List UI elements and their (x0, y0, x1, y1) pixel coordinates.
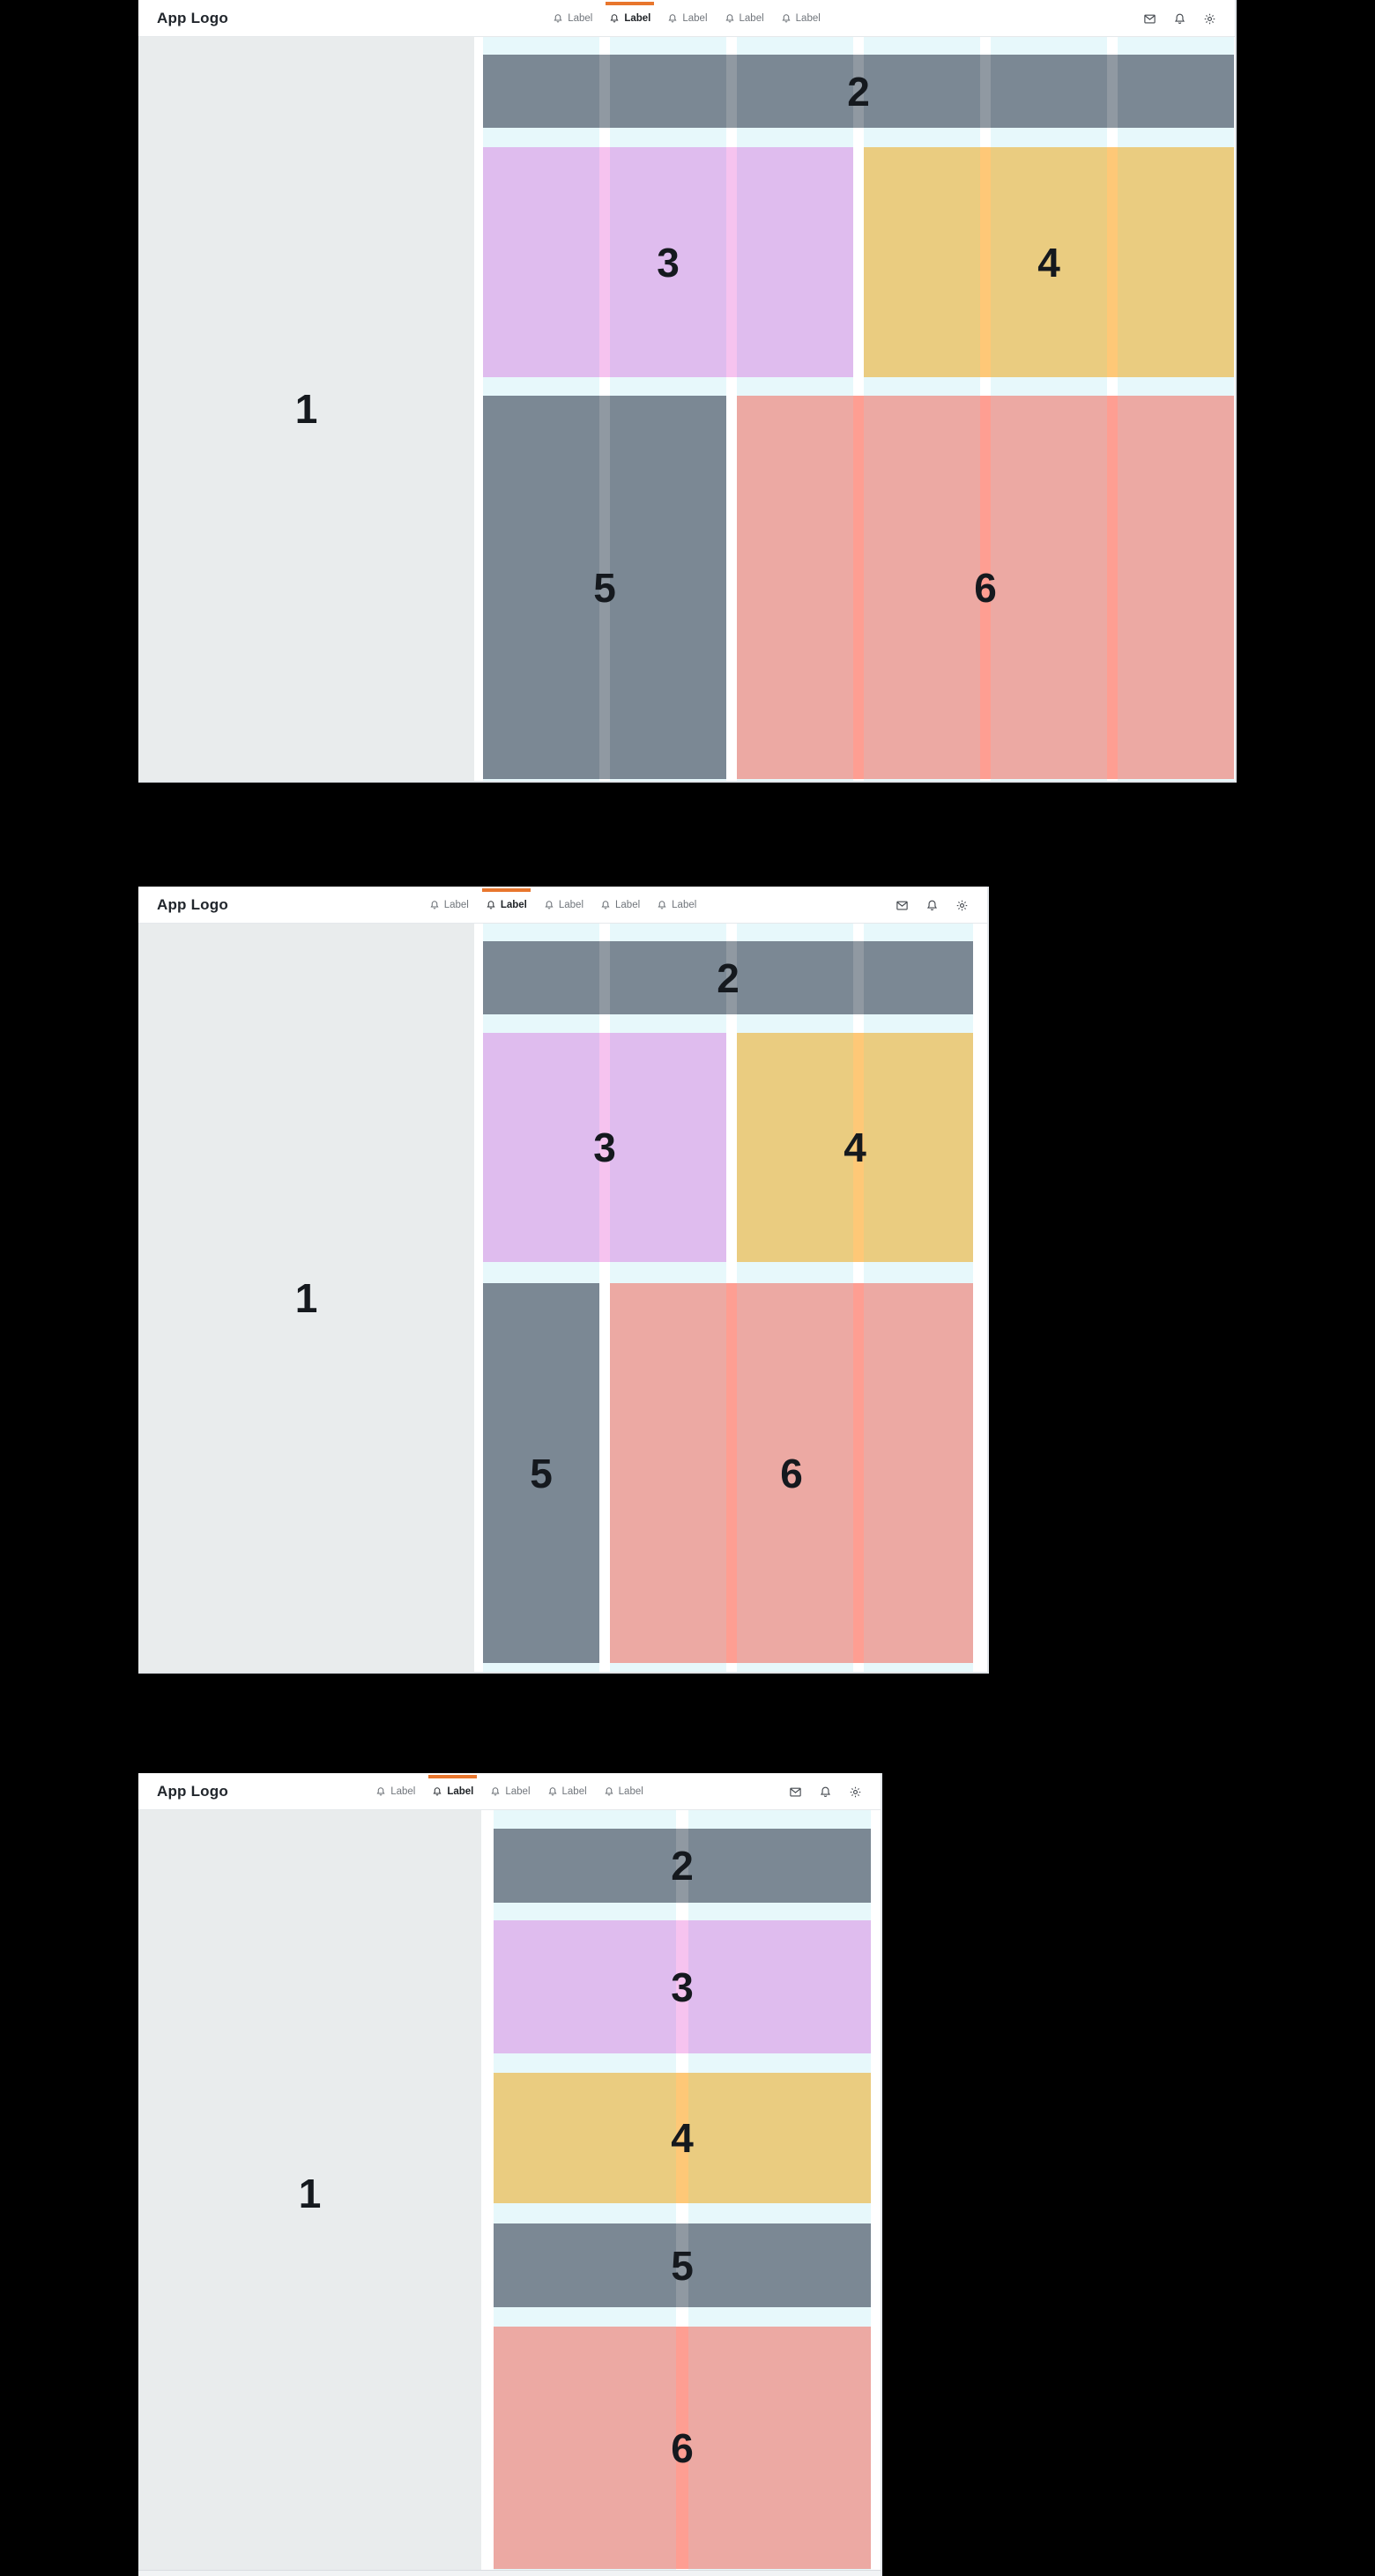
gear-icon[interactable] (1203, 12, 1216, 26)
header-actions (789, 1773, 862, 1810)
mail-icon[interactable] (896, 899, 909, 912)
region-number: 3 (671, 1967, 694, 2008)
main-nav: LabelLabelLabelLabelLabel (138, 0, 1235, 36)
region-5-panel: 5 (494, 2223, 871, 2307)
region-6-panel: 6 (737, 396, 1234, 779)
nav-item-label: Label (568, 13, 592, 24)
bell-icon (600, 900, 611, 910)
region-number: 1 (299, 2173, 322, 2214)
region-number: 2 (717, 958, 740, 998)
mockup-mobile: App Logo LabelLabelLabelLabelLabel (138, 1773, 882, 2576)
region-number: 6 (780, 1453, 803, 1494)
nav-item-label: Label (740, 13, 764, 24)
nav-item-5[interactable]: Label (654, 887, 699, 923)
content-grid: 2 3 4 5 6 (483, 37, 1234, 781)
region-2-top-band: 2 (494, 1829, 871, 1903)
nav-item-label: Label (624, 13, 650, 24)
region-6-panel: 6 (494, 2327, 871, 2569)
bell-icon[interactable] (1173, 12, 1186, 26)
region-number: 5 (530, 1453, 553, 1494)
header-actions (1143, 0, 1216, 37)
bell-icon (667, 13, 678, 24)
region-number: 3 (593, 1127, 616, 1168)
app-header: App Logo LabelLabelLabelLabelLabel (138, 1773, 881, 1810)
nav-item-2-active[interactable]: Label (483, 887, 530, 923)
bell-icon (490, 1786, 501, 1797)
main-nav: LabelLabelLabelLabelLabel (138, 1773, 881, 1809)
bell-icon (547, 1786, 558, 1797)
nav-item-label: Label (390, 1786, 415, 1797)
bell-icon (553, 13, 563, 24)
region-number: 6 (974, 568, 997, 608)
nav-item-label: Label (501, 900, 527, 910)
region-number: 2 (671, 1845, 694, 1886)
region-3-panel: 3 (483, 1033, 726, 1262)
bell-icon (725, 13, 735, 24)
region-4-panel: 4 (494, 2073, 871, 2203)
bell-icon (429, 900, 440, 910)
bell-icon (781, 13, 792, 24)
bell-icon (657, 900, 667, 910)
app-header: App Logo LabelLabelLabelLabelLabel (138, 0, 1235, 37)
sidebar-region-1: 1 (138, 924, 474, 1672)
nav-item-5[interactable]: Label (601, 1773, 646, 1809)
nav-item-label: Label (505, 1786, 530, 1797)
mockup-desktop: App Logo LabelLabelLabelLabelLabel (138, 0, 1237, 783)
nav-item-label: Label (672, 900, 696, 910)
nav-item-1[interactable]: Label (373, 1773, 418, 1809)
gear-icon[interactable] (849, 1785, 862, 1799)
content-grid: 2 3 4 5 6 (483, 924, 973, 1672)
region-number: 1 (295, 1278, 318, 1318)
sidebar-region-1: 1 (138, 37, 474, 781)
region-5-panel: 5 (483, 396, 726, 779)
nav-item-label: Label (444, 900, 469, 910)
region-6-panel: 6 (610, 1283, 973, 1663)
nav-item-5[interactable]: Label (778, 0, 823, 36)
bell-icon (609, 13, 620, 24)
nav-item-2-active[interactable]: Label (606, 0, 653, 36)
region-3-panel: 3 (494, 1920, 871, 2053)
bell-icon (375, 1786, 386, 1797)
app-body: 1 2 3 4 5 6 (138, 924, 987, 1672)
bell-icon[interactable] (819, 1785, 832, 1799)
region-number: 4 (844, 1127, 866, 1168)
nav-item-2-active[interactable]: Label (429, 1773, 476, 1809)
gear-icon[interactable] (955, 899, 969, 912)
nav-item-label: Label (796, 13, 821, 24)
app-body: 1 2 3 4 5 6 (138, 37, 1235, 781)
nav-item-1[interactable]: Label (427, 887, 472, 923)
region-3-panel: 3 (483, 147, 853, 377)
mail-icon[interactable] (1143, 12, 1156, 26)
main-nav: LabelLabelLabelLabelLabel (138, 887, 987, 923)
header-actions (896, 887, 969, 924)
nav-item-label: Label (447, 1786, 473, 1797)
nav-item-label: Label (615, 900, 640, 910)
app-body: 1 2 3 4 5 6 (138, 1810, 881, 2576)
region-number: 2 (847, 71, 870, 112)
nav-item-label: Label (562, 1786, 587, 1797)
region-number: 5 (593, 568, 616, 608)
region-4-panel: 4 (737, 1033, 973, 1262)
app-header: App Logo LabelLabelLabelLabelLabel (138, 887, 987, 924)
region-number: 5 (671, 2246, 694, 2286)
region-number: 4 (1037, 242, 1060, 283)
content-grid: 2 3 4 5 6 (494, 1810, 871, 2576)
region-5-panel: 5 (483, 1283, 599, 1663)
region-2-top-band: 2 (483, 55, 1234, 128)
nav-item-label: Label (619, 1786, 643, 1797)
nav-item-label: Label (682, 13, 707, 24)
nav-item-3[interactable]: Label (487, 1773, 532, 1809)
bell-icon (432, 1786, 442, 1797)
viewport-bottom-edge (138, 2570, 881, 2576)
bell-icon (486, 900, 496, 910)
nav-item-1[interactable]: Label (550, 0, 595, 36)
region-number: 6 (671, 2428, 694, 2468)
nav-item-4[interactable]: Label (722, 0, 767, 36)
nav-item-3[interactable]: Label (541, 887, 586, 923)
region-number: 1 (295, 389, 318, 429)
nav-item-4[interactable]: Label (598, 887, 643, 923)
mail-icon[interactable] (789, 1785, 802, 1799)
region-number: 3 (657, 242, 680, 283)
bell-icon[interactable] (925, 899, 939, 912)
region-2-top-band: 2 (483, 941, 973, 1014)
region-4-panel: 4 (864, 147, 1234, 377)
sidebar-region-1: 1 (138, 1810, 481, 2576)
nav-item-3[interactable]: Label (665, 0, 710, 36)
region-number: 4 (671, 2118, 694, 2158)
bell-icon (544, 900, 554, 910)
bell-icon (604, 1786, 614, 1797)
nav-item-4[interactable]: Label (545, 1773, 590, 1809)
nav-item-label: Label (559, 900, 583, 910)
mockup-tablet: App Logo LabelLabelLabelLabelLabel (138, 887, 989, 1674)
